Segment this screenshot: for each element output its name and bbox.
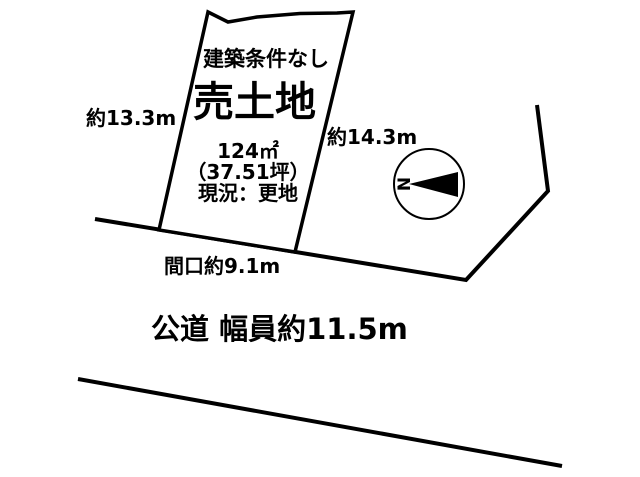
sale-land-title: 売土地 xyxy=(193,82,316,123)
current-status-label: 現況：更地 xyxy=(166,183,330,203)
left-dimension-label: 約13.3m xyxy=(86,108,176,128)
road-far-boundary-line xyxy=(78,379,562,466)
area-tsubo-label: （37.51坪） xyxy=(166,162,330,182)
compass-icon: N xyxy=(394,149,464,219)
right-dimension-label: 約14.3m xyxy=(327,127,417,147)
land-plot-diagram: N 建築条件なし 売土地 124㎡ （37.51坪） 現況：更地 約13.3m … xyxy=(0,0,640,477)
road-width-label: 公道 幅員約11.5m xyxy=(151,315,408,344)
frontage-dimension-label: 間口約9.1m xyxy=(164,256,280,276)
area-m2-label: 124㎡ xyxy=(166,141,330,161)
building-condition-label: 建築条件なし xyxy=(203,49,329,70)
compass-north-label: N xyxy=(395,177,415,191)
diagram-linework: N xyxy=(0,0,640,477)
